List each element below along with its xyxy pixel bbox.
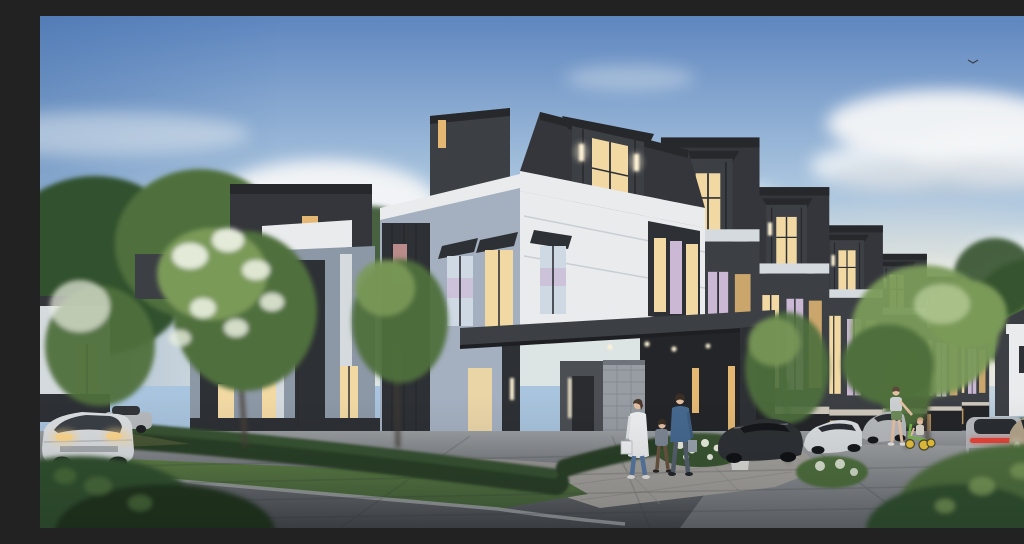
rendering-canvas [40, 16, 1024, 528]
bottom-vignette [40, 396, 1024, 528]
architectural-rendering [40, 16, 1024, 528]
